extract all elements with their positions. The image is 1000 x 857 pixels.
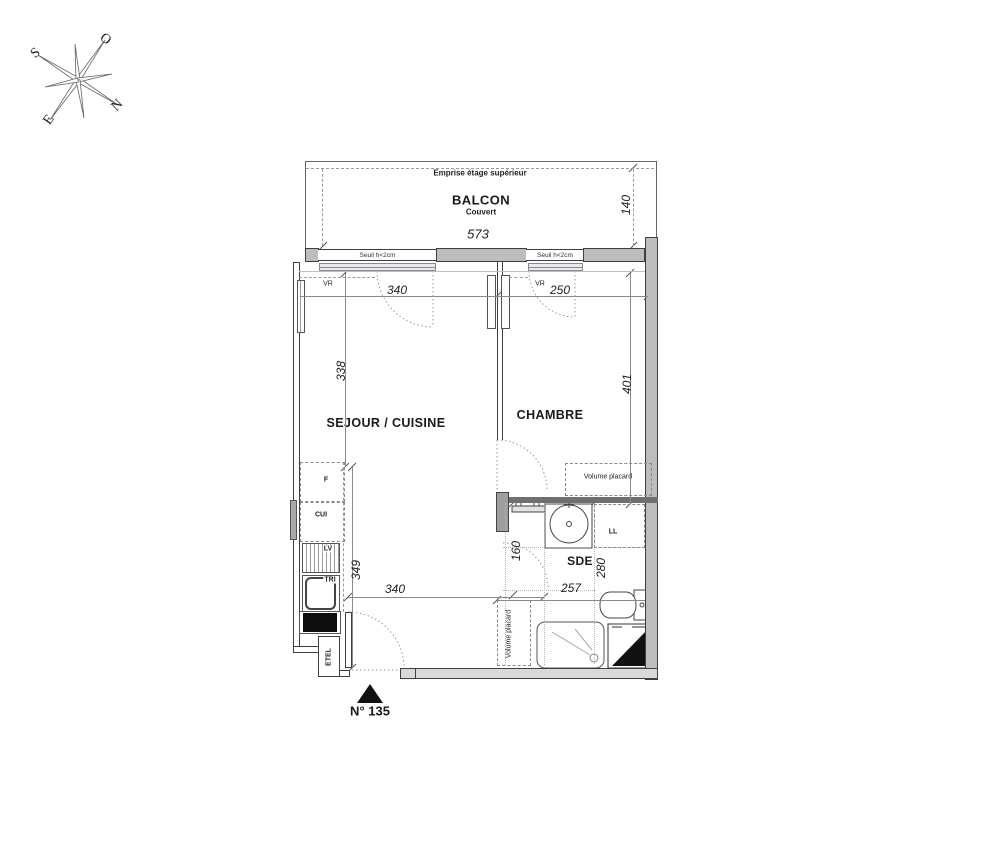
left-wall-lower-window bbox=[290, 500, 297, 540]
washing-machine-label: LL bbox=[609, 529, 618, 536]
top-wall-seg-right bbox=[583, 248, 645, 262]
upper-floor-outline-label: Emprise étage supérieur bbox=[433, 169, 526, 178]
bottom-wall bbox=[400, 668, 658, 679]
sde-depth-dim: 280 bbox=[594, 558, 608, 578]
bottom-wall-joint bbox=[415, 669, 416, 678]
compass-west-label: O bbox=[97, 30, 114, 48]
compass-east-label: E bbox=[41, 112, 58, 128]
balcony-dashed-right bbox=[633, 169, 634, 246]
balcony-width-dim: 573 bbox=[467, 227, 489, 242]
hall-depth-dim: 160 bbox=[509, 541, 523, 561]
unit-marker-triangle bbox=[357, 684, 383, 703]
cooktop-label: CUI bbox=[315, 512, 327, 519]
partition-living-bedroom-a bbox=[497, 262, 498, 440]
partition-panel-right bbox=[501, 275, 510, 329]
bedroom-sde-wall bbox=[503, 497, 658, 503]
bedroom-shutter-line bbox=[509, 277, 528, 278]
sorting-label: TRI bbox=[323, 577, 336, 584]
bedroom-window-sill bbox=[528, 263, 583, 271]
compass-rose bbox=[38, 40, 118, 120]
bedroom-label: CHAMBRE bbox=[517, 408, 584, 422]
sde-width-dim: 257 bbox=[561, 581, 581, 595]
right-wall bbox=[645, 237, 658, 680]
towel-radiator bbox=[512, 502, 546, 512]
toilet bbox=[600, 590, 650, 620]
kitchen-unit-black bbox=[303, 613, 337, 632]
living-window-sill bbox=[319, 263, 436, 271]
dishwasher-box bbox=[302, 543, 340, 573]
door-swing-arcs bbox=[348, 271, 575, 670]
bedroom-width-top-dim: 250 bbox=[550, 283, 570, 297]
etel-label: ETEL bbox=[326, 648, 333, 666]
balcony-dashed-left bbox=[322, 169, 323, 246]
washbasin bbox=[545, 503, 592, 548]
shower-room-label: SDE bbox=[567, 554, 593, 568]
washing-machine-box bbox=[594, 504, 645, 548]
balcony-depth-dim: 140 bbox=[619, 195, 633, 215]
bedroom-window: Seuil h<2cm bbox=[526, 249, 584, 261]
top-interior-face-line bbox=[299, 271, 645, 272]
compass-south-label: S bbox=[28, 45, 44, 62]
kitchen-run-dim: 349 bbox=[349, 560, 363, 580]
bedroom-depth-dim: 401 bbox=[620, 374, 634, 394]
compass-north-label: N bbox=[109, 97, 127, 115]
top-wall-seg-left bbox=[305, 248, 319, 262]
left-wall-step bbox=[293, 646, 321, 653]
hall-closet-box bbox=[497, 600, 531, 666]
living-width-top-dim: 340 bbox=[387, 283, 407, 297]
entrance-door-leaf bbox=[345, 612, 352, 668]
living-window: Seuil h<2cm bbox=[318, 249, 437, 261]
sde-guide-h2 bbox=[503, 590, 595, 591]
bedroom-closet-label: Volume placard bbox=[584, 474, 632, 481]
sde-guide-v2 bbox=[544, 503, 545, 665]
unit-number-label: N° 135 bbox=[350, 704, 390, 719]
balcony-label: BALCON bbox=[452, 193, 510, 208]
dim-line-top bbox=[300, 296, 648, 297]
top-wall-seg-mid bbox=[436, 248, 527, 262]
living-width-bottom-dim: 340 bbox=[385, 582, 405, 596]
plan-linework: O S E N bbox=[0, 0, 1000, 857]
floor-plan: O S E N bbox=[0, 0, 1000, 857]
bedroom-shutter-label: VR bbox=[535, 281, 545, 288]
living-shutter-line bbox=[299, 277, 375, 278]
cooktop-box bbox=[300, 502, 345, 542]
left-wall-window-mullion bbox=[300, 281, 301, 332]
partition-panel-left bbox=[487, 275, 496, 329]
dim-line-sde-width bbox=[497, 600, 645, 601]
fridge-box bbox=[300, 462, 345, 502]
living-shutter-label: VR bbox=[323, 281, 333, 288]
balcony-covered-label: Couvert bbox=[466, 208, 496, 217]
living-depth-dim: 338 bbox=[334, 361, 348, 381]
hall-door-leaf bbox=[496, 492, 509, 532]
dishwasher-label: LV bbox=[323, 546, 333, 553]
dim-line-living-bottom bbox=[348, 597, 544, 598]
fridge-label: F bbox=[324, 477, 328, 484]
living-window-threshold-label: Seuil h<2cm bbox=[360, 252, 396, 259]
left-wall-window bbox=[297, 280, 305, 333]
kitchen-front-line bbox=[343, 462, 344, 612]
bedroom-window-threshold-label: Seuil h<2cm bbox=[537, 252, 573, 259]
hall-closet-label: Volume placard bbox=[506, 610, 513, 658]
